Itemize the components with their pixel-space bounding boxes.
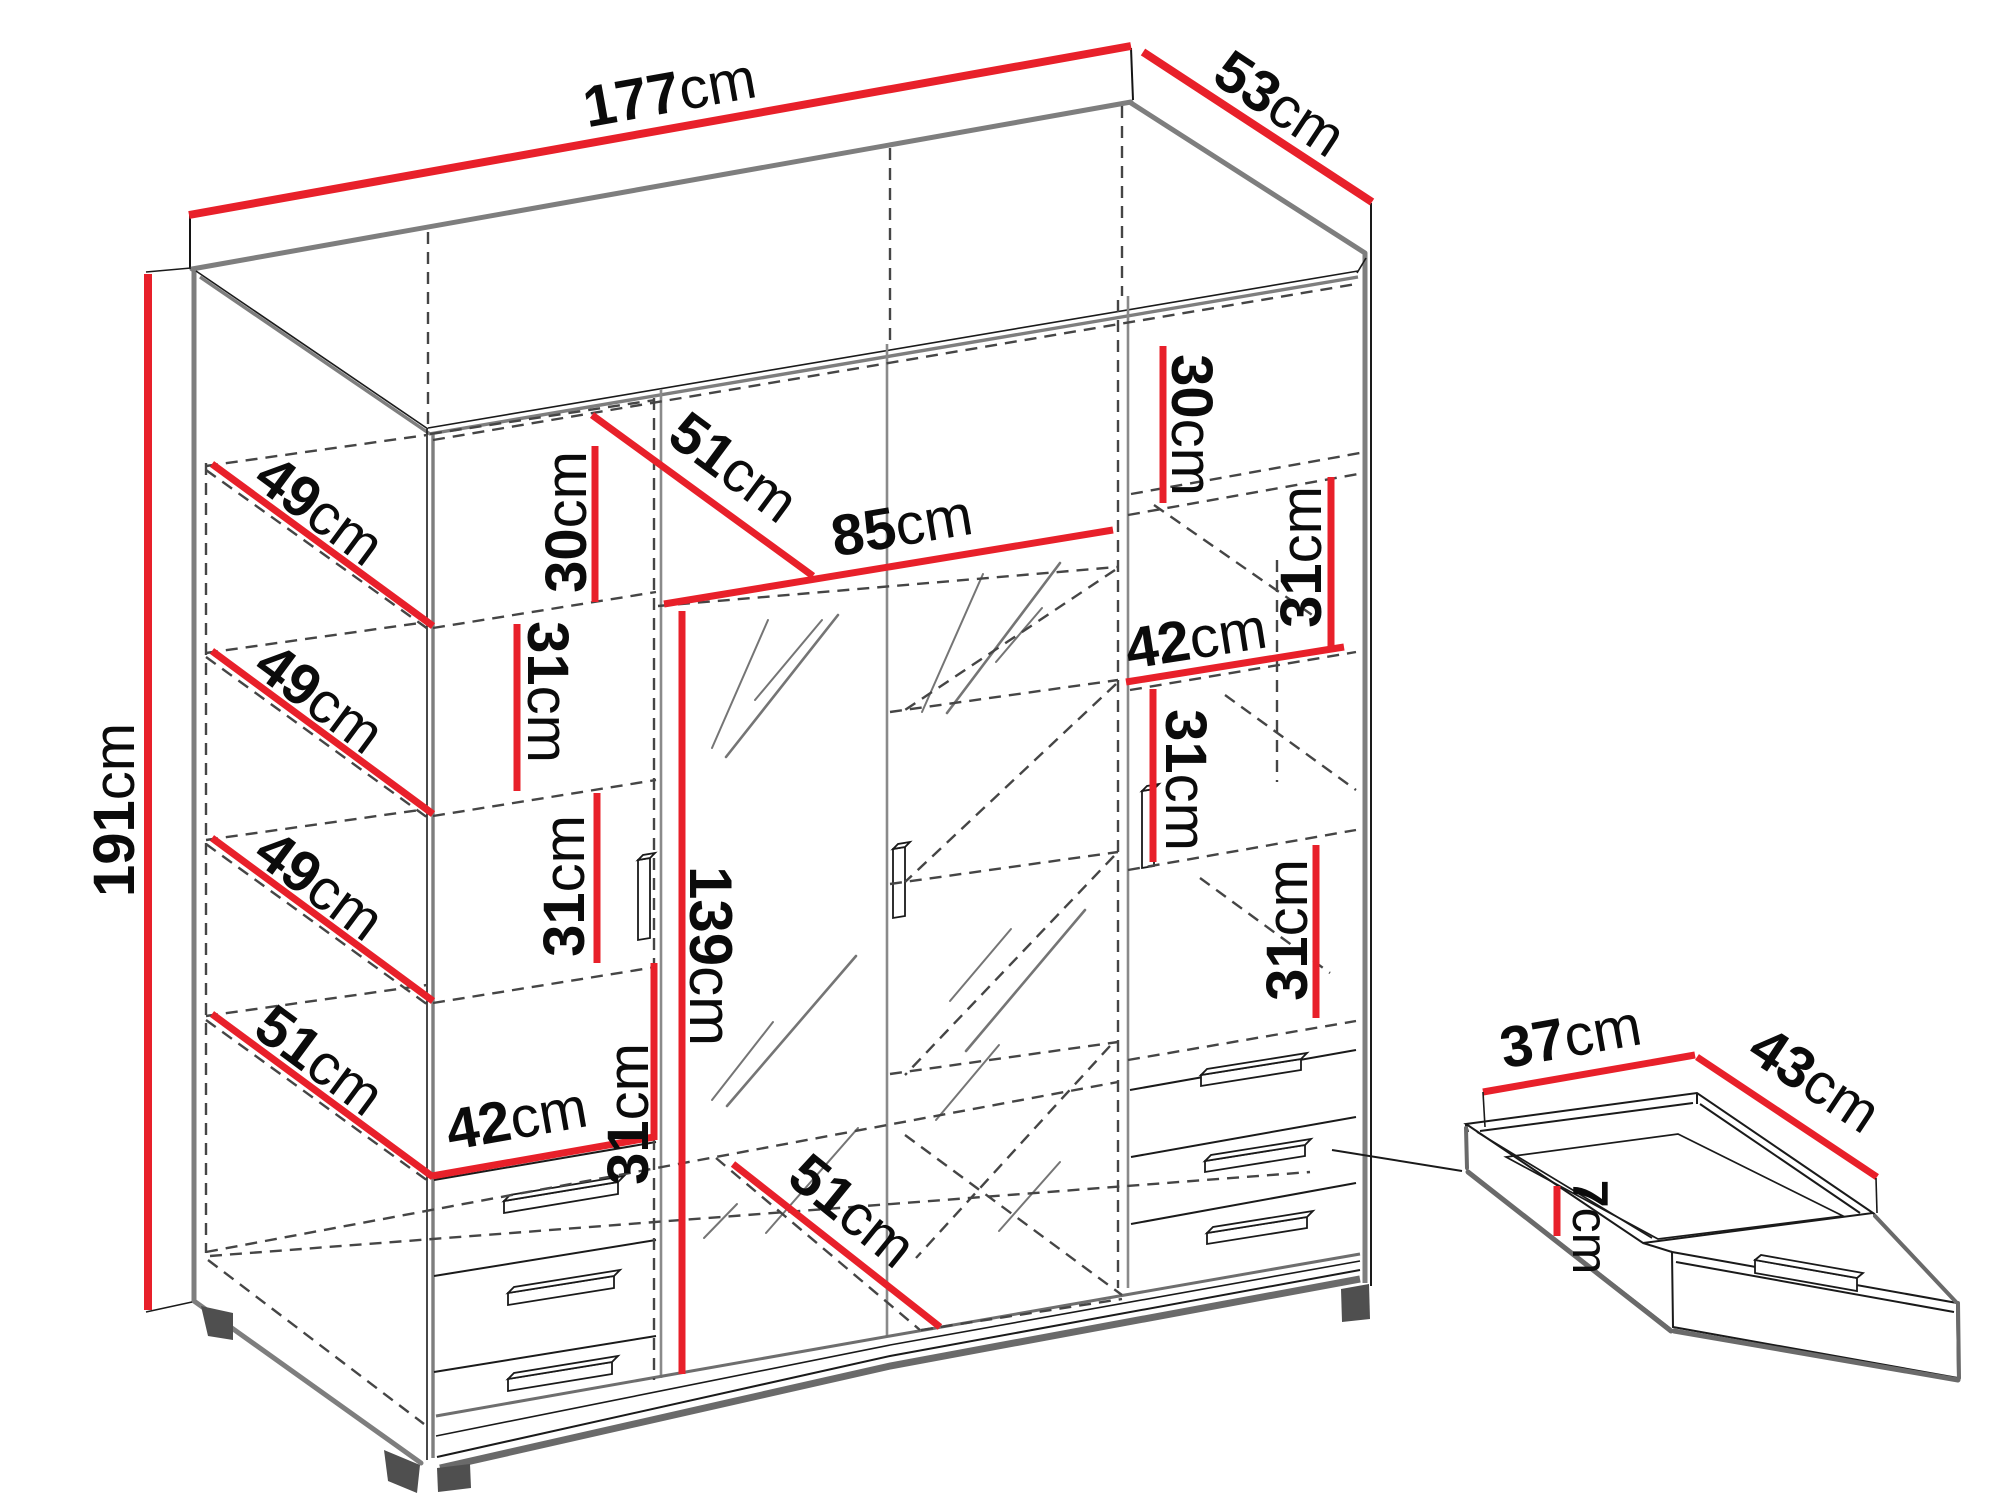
svg-text:31cm: 31cm — [596, 1043, 661, 1185]
svg-text:31cm: 31cm — [1269, 486, 1334, 628]
svg-text:30cm: 30cm — [534, 451, 599, 593]
svg-text:191cm: 191cm — [82, 723, 147, 897]
svg-text:31cm: 31cm — [1153, 709, 1218, 851]
svg-text:31cm: 31cm — [532, 815, 597, 957]
svg-text:30cm: 30cm — [1159, 354, 1224, 496]
svg-text:31cm: 31cm — [1255, 859, 1320, 1001]
svg-text:139cm: 139cm — [677, 866, 744, 1046]
svg-text:31cm: 31cm — [515, 621, 580, 763]
svg-text:7cm: 7cm — [1562, 1180, 1618, 1274]
